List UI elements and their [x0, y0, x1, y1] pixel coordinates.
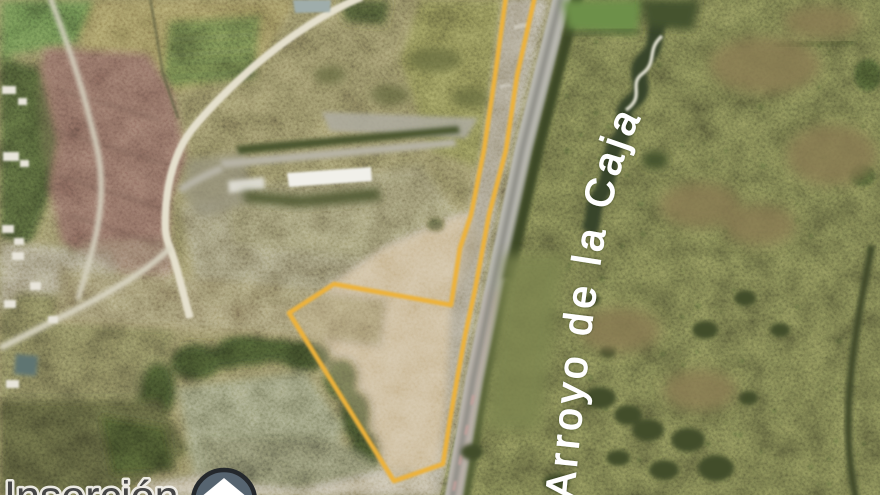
svg-text:Inserción: Inserción [4, 473, 178, 495]
